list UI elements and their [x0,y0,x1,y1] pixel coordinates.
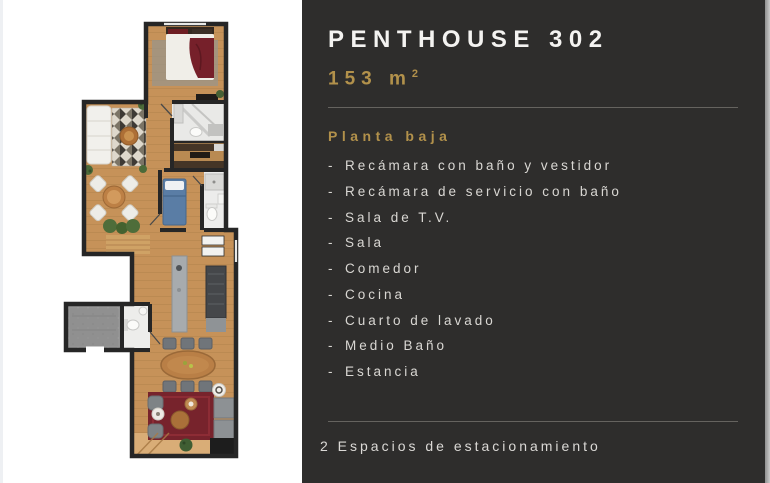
floor-plan-image [0,0,302,483]
feature-item: -Medio Baño [328,333,738,359]
feature-item: -Sala [328,230,738,256]
listing-card: PENTHOUSE 302 153 m2 Planta baja -Recáma… [0,0,770,483]
area-exponent: 2 [412,68,418,80]
bullet-dash: - [328,333,336,359]
dining-area [161,338,215,392]
feature-text: Sala [345,235,384,250]
bullet-dash: - [328,256,336,282]
bullet-dash: - [328,230,336,256]
bullet-dash: - [328,359,336,385]
feature-text: Cuarto de lavado [345,313,496,328]
feature-item: -Cuarto de lavado [328,308,738,334]
laundry-room [70,308,118,346]
bullet-dash: - [328,179,336,205]
bullet-dash: - [328,308,336,334]
service-bedroom [163,179,186,225]
bullet-dash: - [328,205,336,231]
info-panel: PENTHOUSE 302 153 m2 Planta baja -Recáma… [302,0,766,483]
feature-list: -Recámara con baño y vestidor -Recámara … [328,153,738,384]
feature-item: -Recámara con baño y vestidor [328,153,738,179]
divider-top [328,107,738,108]
right-edge-strip [765,0,770,483]
parking-note: 2 Espacios de estacionamiento [320,437,738,455]
feature-text: Recámara con baño y vestidor [345,158,612,173]
bullet-dash: - [328,153,336,179]
feature-text: Recámara de servicio con baño [345,184,622,199]
feature-text: Estancia [345,364,421,379]
bullet-dash: - [328,282,336,308]
area-unit: m [389,68,412,89]
area-value: 153 [328,68,378,89]
feature-item: -Sala de T.V. [328,205,738,231]
floor-plan [0,0,302,483]
feature-item: -Estancia [328,359,738,385]
divider-bottom [328,421,738,422]
feature-text: Cocina [345,287,405,302]
area-label: 153 m2 [328,63,738,90]
feature-text: Sala de T.V. [345,210,452,225]
feature-item: -Comedor [328,256,738,282]
page-title: PENTHOUSE 302 [328,26,738,54]
section-heading: Planta baja [328,128,738,144]
feature-item: -Cocina [328,282,738,308]
feature-item: -Recámara de servicio con baño [328,179,738,205]
feature-text: Comedor [345,261,422,276]
feature-text: Medio Baño [345,338,447,353]
tv-room [83,100,148,175]
